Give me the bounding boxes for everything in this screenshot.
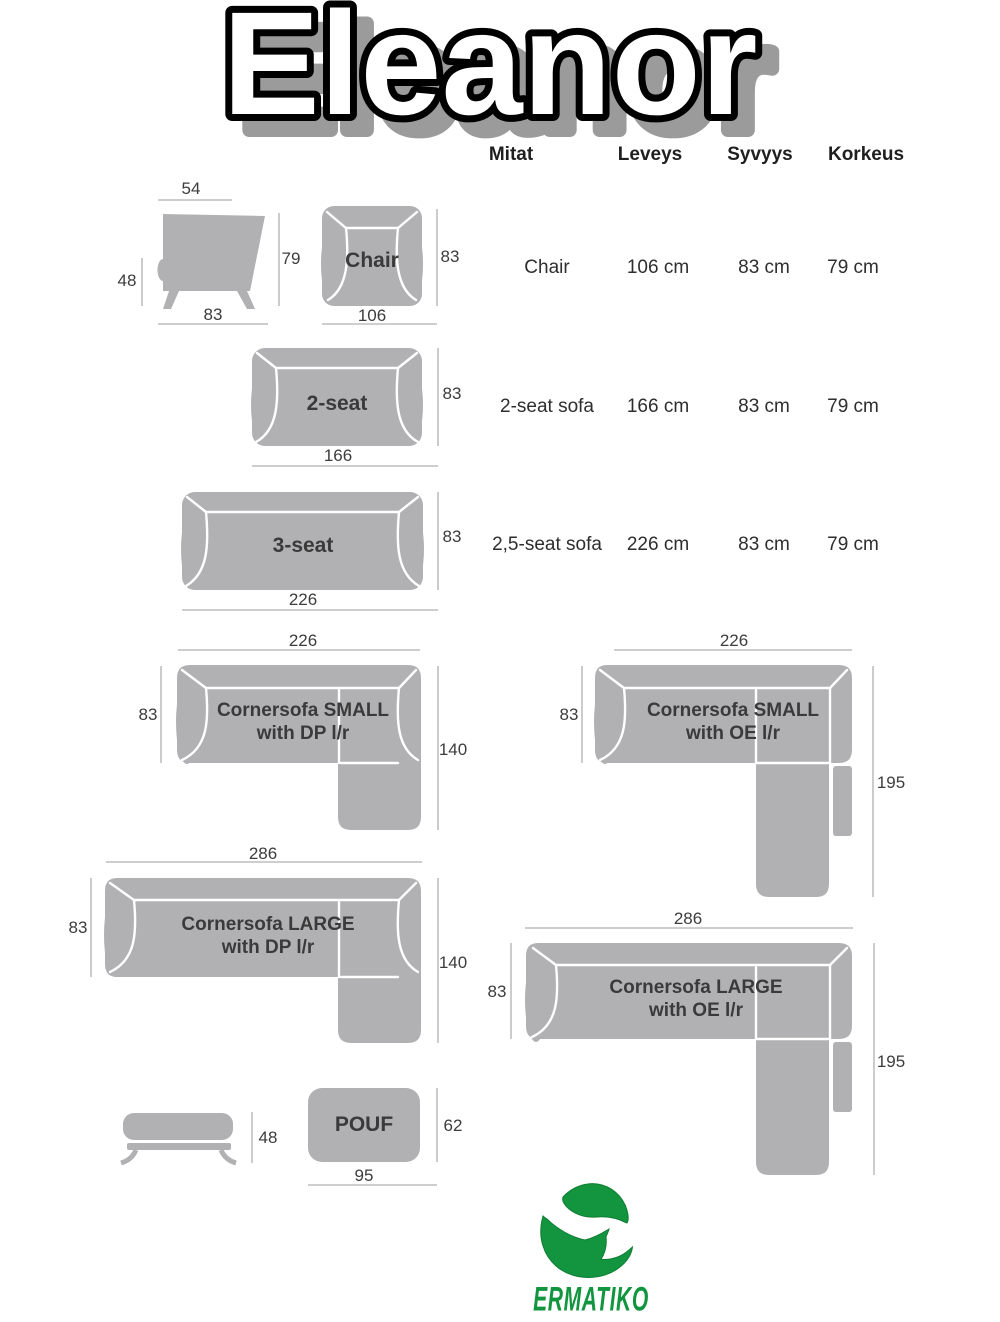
corner-small-oe-drawing xyxy=(582,650,873,897)
furniture-spec-sheet: Eleanor Eleanor xyxy=(0,0,1000,1322)
dim-pouf-top-right: 62 xyxy=(444,1116,463,1136)
table-header-syvyys: Syvyys xyxy=(727,144,793,166)
label-pouf: POUF xyxy=(335,1113,393,1137)
dim-corner-small-oe-right: 195 xyxy=(877,773,905,793)
table-header-korkeus: Korkeus xyxy=(828,144,904,166)
diagram-linework xyxy=(0,0,1000,1322)
table-header-mitat: Mitat xyxy=(489,144,533,166)
dim-corner-large-dp-left: 83 xyxy=(69,918,88,938)
dim-three-seat-bottom: 226 xyxy=(289,590,317,610)
label-two-seat: 2-seat xyxy=(307,392,368,416)
row-leveys: 166 cm xyxy=(627,396,689,418)
dim-pouf-side-right: 48 xyxy=(259,1128,278,1148)
label-corner-large-dp-line2: with DP l/r xyxy=(222,937,315,959)
dim-corner-large-oe-left: 83 xyxy=(488,982,507,1002)
dim-corner-large-oe-right: 195 xyxy=(877,1052,905,1072)
row-name: Chair xyxy=(524,257,569,279)
label-corner-large-dp-line1: Cornersofa LARGE xyxy=(181,914,354,936)
label-corner-small-dp-line1: Cornersofa SMALL xyxy=(217,700,389,722)
dim-two-seat-bottom: 166 xyxy=(324,446,352,466)
label-corner-large-oe-line2: with OE l/r xyxy=(649,1000,743,1022)
row-syvyys: 83 cm xyxy=(738,534,790,556)
dim-pouf-top-bottom: 95 xyxy=(355,1166,374,1186)
row-name: 2-seat sofa xyxy=(500,396,594,418)
label-corner-small-dp-line2: with DP l/r xyxy=(257,723,350,745)
ermatiko-logo-emblem xyxy=(541,1184,633,1278)
row-name: 2,5-seat sofa xyxy=(492,534,602,556)
label-corner-large-oe-line1: Cornersofa LARGE xyxy=(609,977,782,999)
dim-chair-side-left: 48 xyxy=(118,271,137,291)
row-korkeus: 79 cm xyxy=(827,257,879,279)
table-header-leveys: Leveys xyxy=(618,144,682,166)
dim-chair-side-top: 54 xyxy=(182,179,201,199)
label-corner-small-oe-line1: Cornersofa SMALL xyxy=(647,700,819,722)
dim-two-seat-right: 83 xyxy=(443,384,462,404)
dim-corner-large-dp-right: 140 xyxy=(439,953,467,973)
row-leveys: 106 cm xyxy=(627,257,689,279)
row-korkeus: 79 cm xyxy=(827,534,879,556)
dim-corner-large-oe-top: 286 xyxy=(674,909,702,929)
ermatiko-logo-wordmark: ERMATIKO xyxy=(533,1281,649,1320)
dim-corner-small-oe-top: 226 xyxy=(720,631,748,651)
dim-chair-side-bottom: 83 xyxy=(204,305,223,325)
dim-corner-small-dp-left: 83 xyxy=(139,705,158,725)
label-three-seat: 3-seat xyxy=(273,534,334,558)
row-syvyys: 83 cm xyxy=(738,257,790,279)
dim-corner-large-dp-top: 286 xyxy=(249,844,277,864)
row-syvyys: 83 cm xyxy=(738,396,790,418)
dim-chair-top-bottom: 106 xyxy=(358,306,386,326)
dim-corner-small-oe-left: 83 xyxy=(560,705,579,725)
dim-corner-small-dp-right: 140 xyxy=(439,740,467,760)
corner-large-oe-drawing xyxy=(511,928,874,1175)
pouf-side-drawing xyxy=(121,1112,252,1163)
dim-corner-small-dp-top: 226 xyxy=(289,631,317,651)
dim-three-seat-right: 83 xyxy=(443,527,462,547)
dim-chair-side-right: 79 xyxy=(282,249,301,269)
row-leveys: 226 cm xyxy=(627,534,689,556)
dim-chair-top-right: 83 xyxy=(441,247,460,267)
label-chair: Chair xyxy=(345,249,399,273)
row-korkeus: 79 cm xyxy=(827,396,879,418)
label-corner-small-oe-line2: with OE l/r xyxy=(686,723,780,745)
